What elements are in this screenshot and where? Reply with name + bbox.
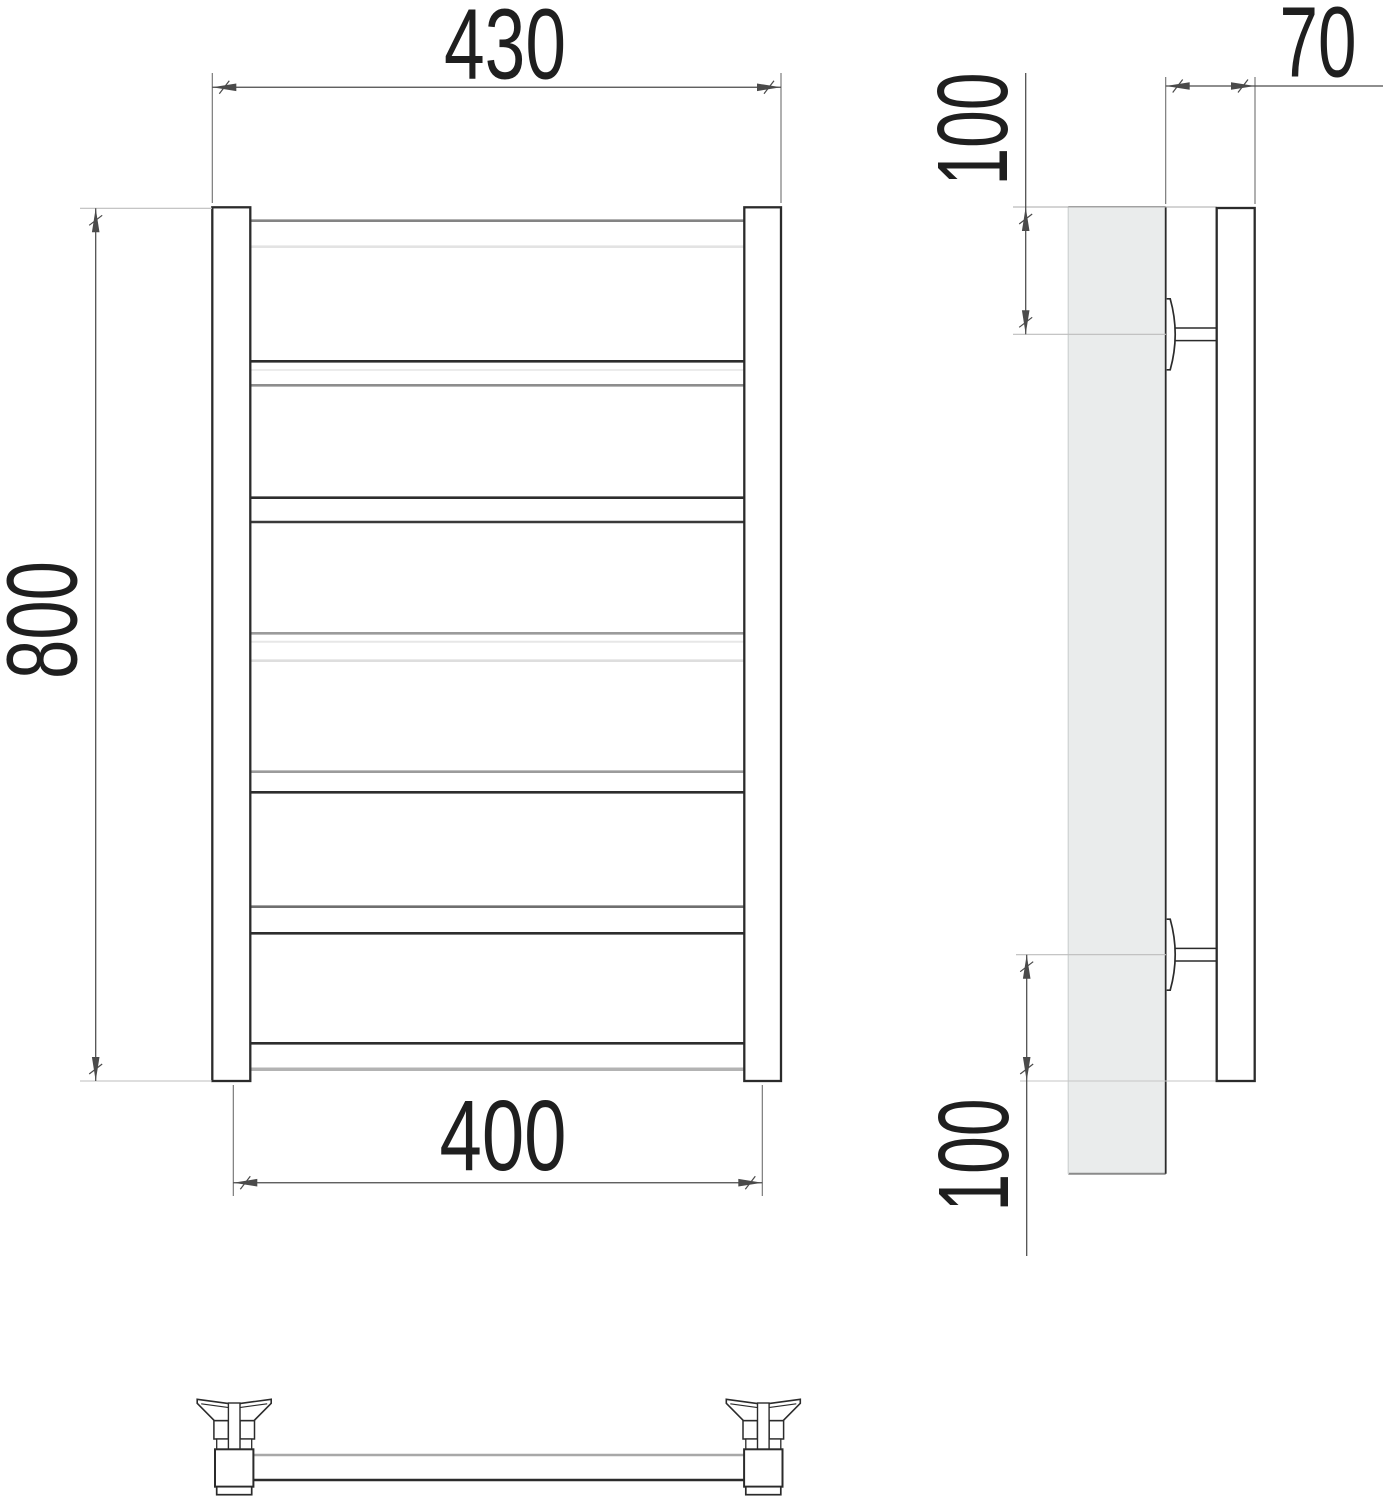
dimension-label-overall-height: 800 — [0, 561, 99, 679]
bracket-dome — [1167, 299, 1176, 370]
bracket-stem — [1171, 328, 1217, 341]
collar-right-half — [769, 1421, 784, 1439]
dimension-label-bottom-width: 400 — [440, 1080, 567, 1192]
post-left — [212, 207, 250, 1081]
rung-bar-2 — [250, 361, 744, 385]
post-side-profile — [1217, 208, 1255, 1081]
post-right — [744, 207, 781, 1081]
side-view — [1013, 207, 1255, 1174]
dimension-overall-height: 800 — [0, 208, 212, 1081]
rung-bar-3 — [250, 498, 744, 522]
collar-left-half — [743, 1421, 758, 1439]
post-cap — [746, 1487, 781, 1495]
dimension-label-bottom-offset: 100 — [918, 1099, 1030, 1212]
dimension-overall-width: 430 — [212, 0, 781, 203]
dimension-bottom-width: 400 — [233, 1080, 762, 1196]
rung-bar-1 — [250, 221, 744, 247]
dimension-label-top-offset: 100 — [917, 73, 1029, 186]
bracket-stem — [1171, 948, 1217, 961]
collar-right-half — [240, 1421, 255, 1439]
dimension-top-offset: 100 — [917, 73, 1032, 335]
post-cap — [217, 1487, 252, 1495]
wall-panel — [1068, 207, 1165, 1174]
technical-drawing-page: 43080040010070100 — [0, 0, 1388, 1500]
collar-left-half — [214, 1421, 229, 1439]
stem — [758, 1403, 770, 1449]
dimension-label-overall-width: 430 — [444, 0, 566, 100]
bracket-dome — [1167, 919, 1176, 990]
rung-bar-4 — [250, 633, 744, 660]
rung-bar-7 — [250, 1043, 744, 1069]
dimension-bottom-offset: 100 — [918, 955, 1033, 1256]
bottom-view — [197, 1399, 800, 1494]
dimension-depth: 70 — [1166, 0, 1383, 204]
stem — [228, 1403, 240, 1449]
front-view — [212, 207, 781, 1081]
post-block — [744, 1449, 782, 1486]
post-block — [215, 1449, 253, 1486]
dimension-label-depth: 70 — [1280, 0, 1357, 99]
rung-bar-6 — [250, 907, 744, 934]
rung-bar-5 — [250, 772, 744, 793]
towel-rail-drawing: 43080040010070100 — [0, 0, 1388, 1500]
